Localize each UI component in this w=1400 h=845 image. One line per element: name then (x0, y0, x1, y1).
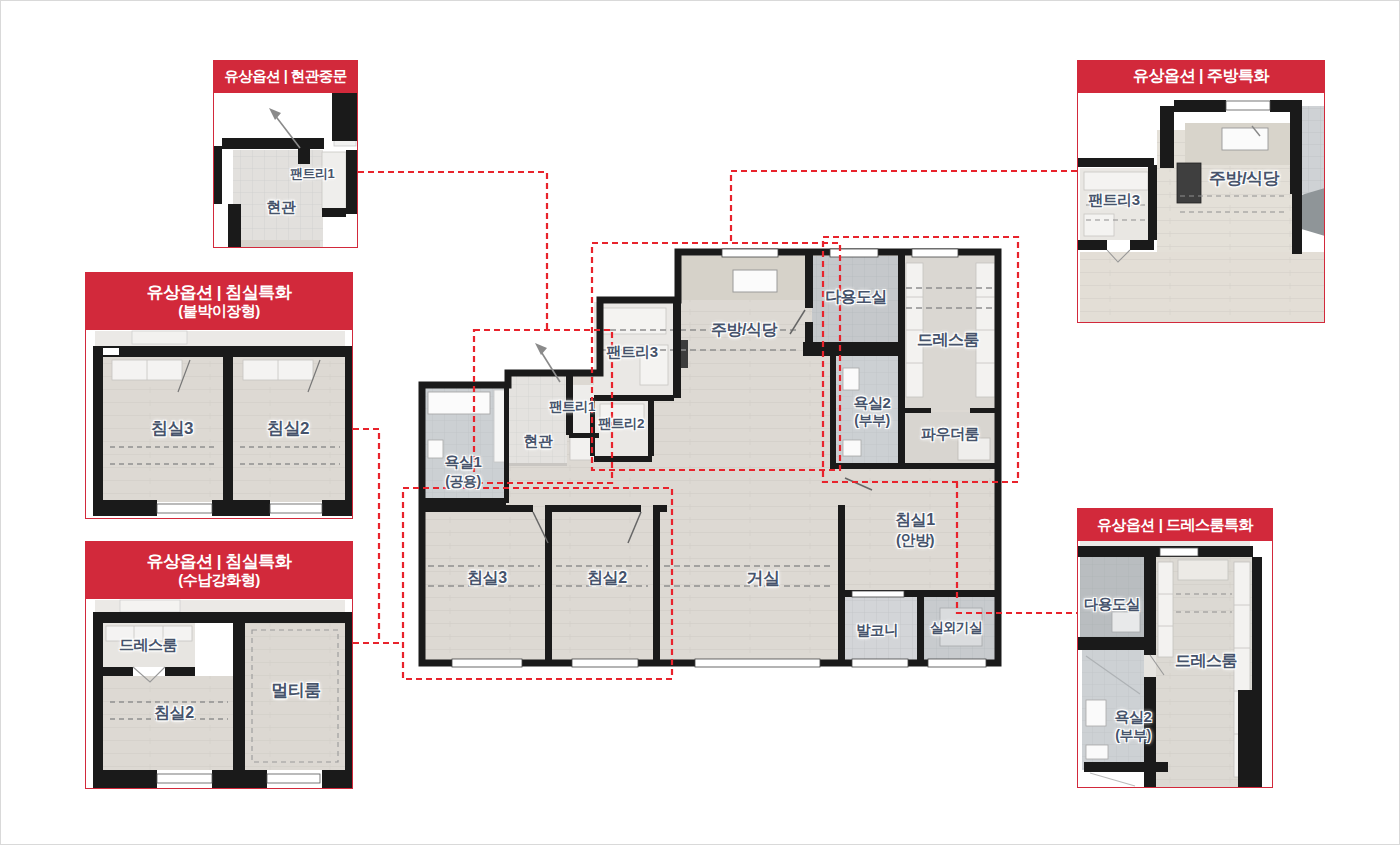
label-balcony: 발코니 (856, 621, 898, 640)
panel-dressroom-header: 유상옵션 | 드레스룸특화 (1077, 508, 1273, 541)
label-powder: 파우더룸 (921, 425, 979, 444)
connector-kitchen (731, 171, 1077, 243)
p5-label-bath2: 욕실2 (1115, 708, 1152, 727)
connector-entrance (358, 172, 547, 330)
label-entry: 현관 (524, 432, 553, 451)
p3-label-multi: 멀티룸 (271, 679, 321, 702)
p3-label-bed2: 침실2 (154, 703, 193, 724)
panel-bedroom-builtin-subtitle: (붙박이장형) (178, 302, 260, 319)
label-bath1-sub: (공용) (445, 473, 480, 491)
panel-bedroom-storage-subtitle: (수납강화형) (178, 571, 260, 588)
floorplan-infographic: 유상옵션 | 현관중문 유상옵션 | 침실특화 (붙박이장형) 유상옵션 | 침… (0, 0, 1400, 845)
panel-entrance-miniplan (213, 93, 358, 248)
panel-kitchen-header: 유상옵션 | 주방특화 (1077, 60, 1325, 93)
panel-entrance-title: 유상옵션 | 현관중문 (224, 68, 347, 85)
label-kitchen: 주방/식당 (711, 320, 777, 341)
label-pantry3: 팬트리3 (606, 343, 657, 362)
panel-bedroom-builtin-title: 유상옵션 | 침실특화 (147, 283, 292, 303)
label-outdoor-unit: 실외기실 (930, 619, 982, 637)
label-pantry2: 팬트리2 (598, 415, 644, 433)
label-living: 거실 (747, 567, 780, 590)
connector-bedroom-builtin (353, 429, 379, 643)
p4-label-pantry3: 팬트리3 (1088, 191, 1139, 210)
panel-bedroom-storage-header: 유상옵션 | 침실특화 (수납강화형) (85, 541, 353, 599)
p1-label-entry: 현관 (267, 198, 296, 217)
label-bed2: 침실2 (587, 568, 626, 589)
p5-label-dressroom: 드레스룸 (1175, 651, 1237, 672)
label-pantry1: 팬트리1 (549, 398, 595, 416)
floorplan-graphics (0, 0, 1400, 845)
p3-label-dressroom: 드레스룸 (119, 636, 177, 655)
label-bed1-sub: (안방) (896, 531, 934, 550)
p4-label-kitchen: 주방/식당 (1209, 167, 1279, 190)
panel-kitchen-title: 유상옵션 | 주방특화 (1133, 67, 1269, 85)
label-bath2-sub: (부부) (854, 412, 889, 430)
panel-bedroom-builtin-header: 유상옵션 | 침실특화 (붙박이장형) (85, 272, 353, 330)
label-dressroom: 드레스룸 (917, 330, 979, 351)
label-bath1: 욕실1 (445, 453, 482, 472)
panel-kitchen-miniplan (1077, 100, 1325, 323)
p5-label-utility: 다용도실 (1084, 595, 1140, 614)
panel-entrance-header: 유상옵션 | 현관중문 (213, 60, 358, 93)
panel-bedroom-storage-title: 유상옵션 | 침실특화 (147, 552, 292, 572)
p2-label-bed2: 침실2 (267, 417, 309, 440)
label-bath2: 욕실2 (854, 394, 891, 413)
p5-label-bath2-sub: (부부) (1115, 727, 1150, 745)
label-bed3: 침실3 (467, 568, 506, 589)
panel-bedroom-builtin-miniplan (93, 331, 353, 516)
p2-label-bed3: 침실3 (151, 417, 193, 440)
p1-label-pantry1: 팬트리1 (290, 165, 334, 183)
label-bed1: 침실1 (895, 510, 934, 531)
panel-dressroom-title: 유상옵션 | 드레스룸특화 (1097, 516, 1253, 533)
label-utility: 다용도실 (825, 287, 887, 308)
